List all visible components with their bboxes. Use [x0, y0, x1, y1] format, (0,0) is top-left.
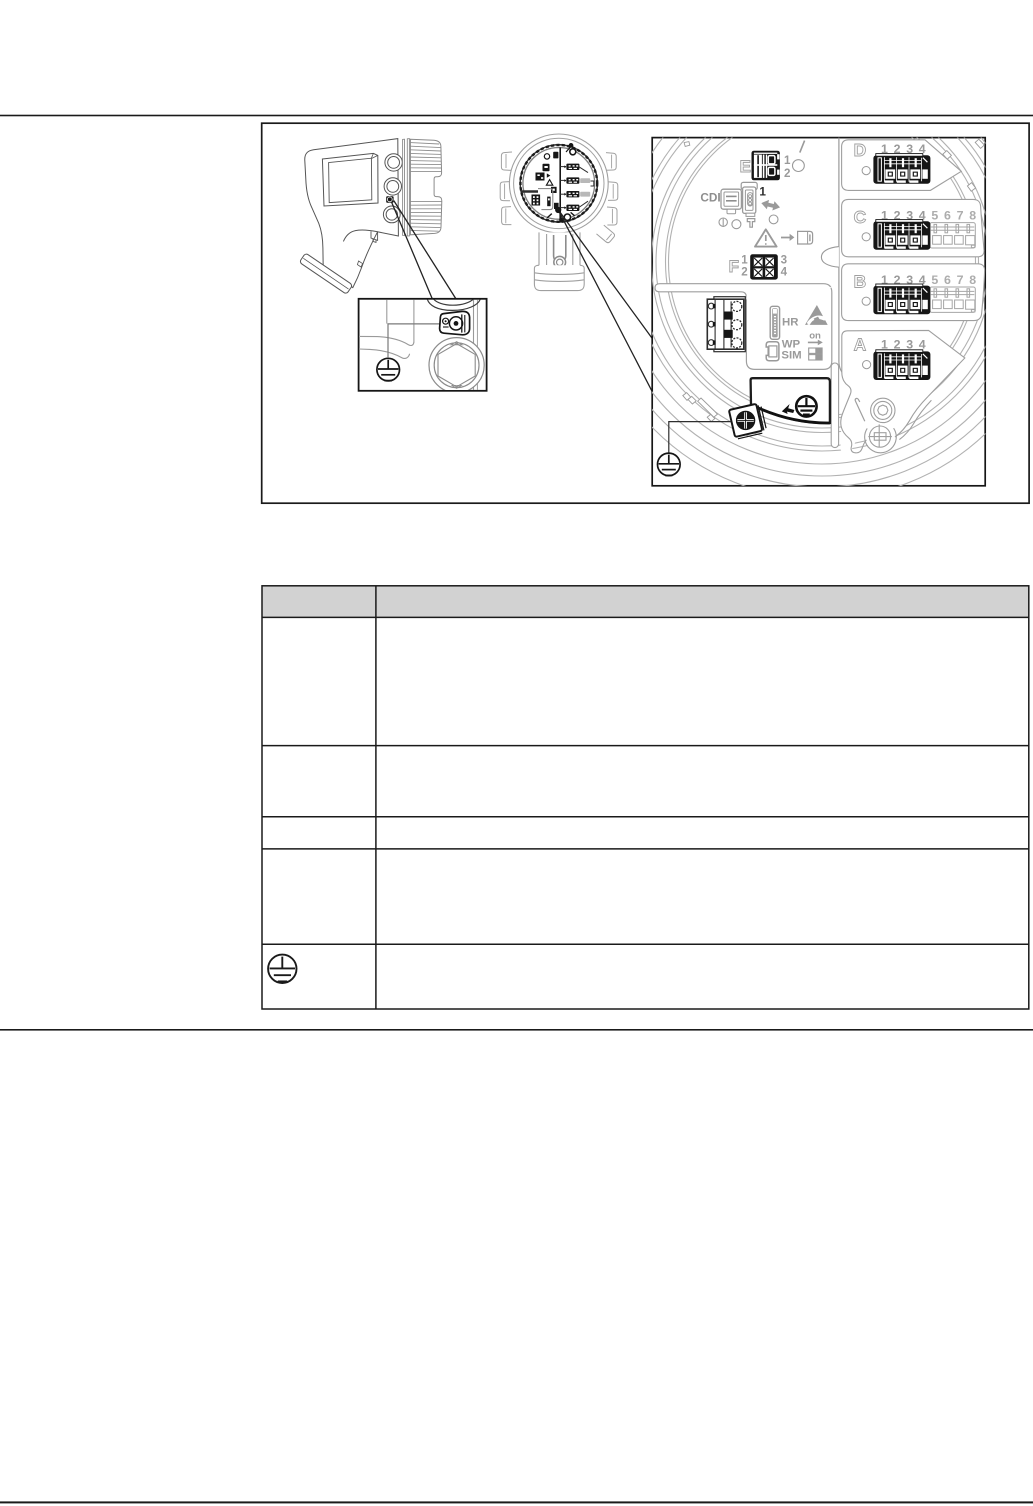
- svg-text:HR: HR: [782, 317, 798, 329]
- svg-text:1: 1: [784, 154, 791, 167]
- svg-text:D: D: [854, 140, 867, 160]
- svg-text:2: 2: [784, 167, 790, 180]
- svg-text:C: C: [854, 207, 867, 227]
- svg-text:1: 1: [759, 185, 766, 199]
- svg-text:A: A: [854, 335, 867, 355]
- svg-text:E: E: [740, 157, 751, 176]
- svg-text:4: 4: [781, 265, 788, 278]
- svg-text:F: F: [729, 257, 739, 276]
- svg-text:CDI: CDI: [700, 190, 720, 204]
- svg-text:on: on: [809, 331, 821, 342]
- svg-text:SIM: SIM: [781, 349, 801, 361]
- svg-text:2: 2: [741, 265, 747, 278]
- svg-text:B: B: [854, 271, 867, 291]
